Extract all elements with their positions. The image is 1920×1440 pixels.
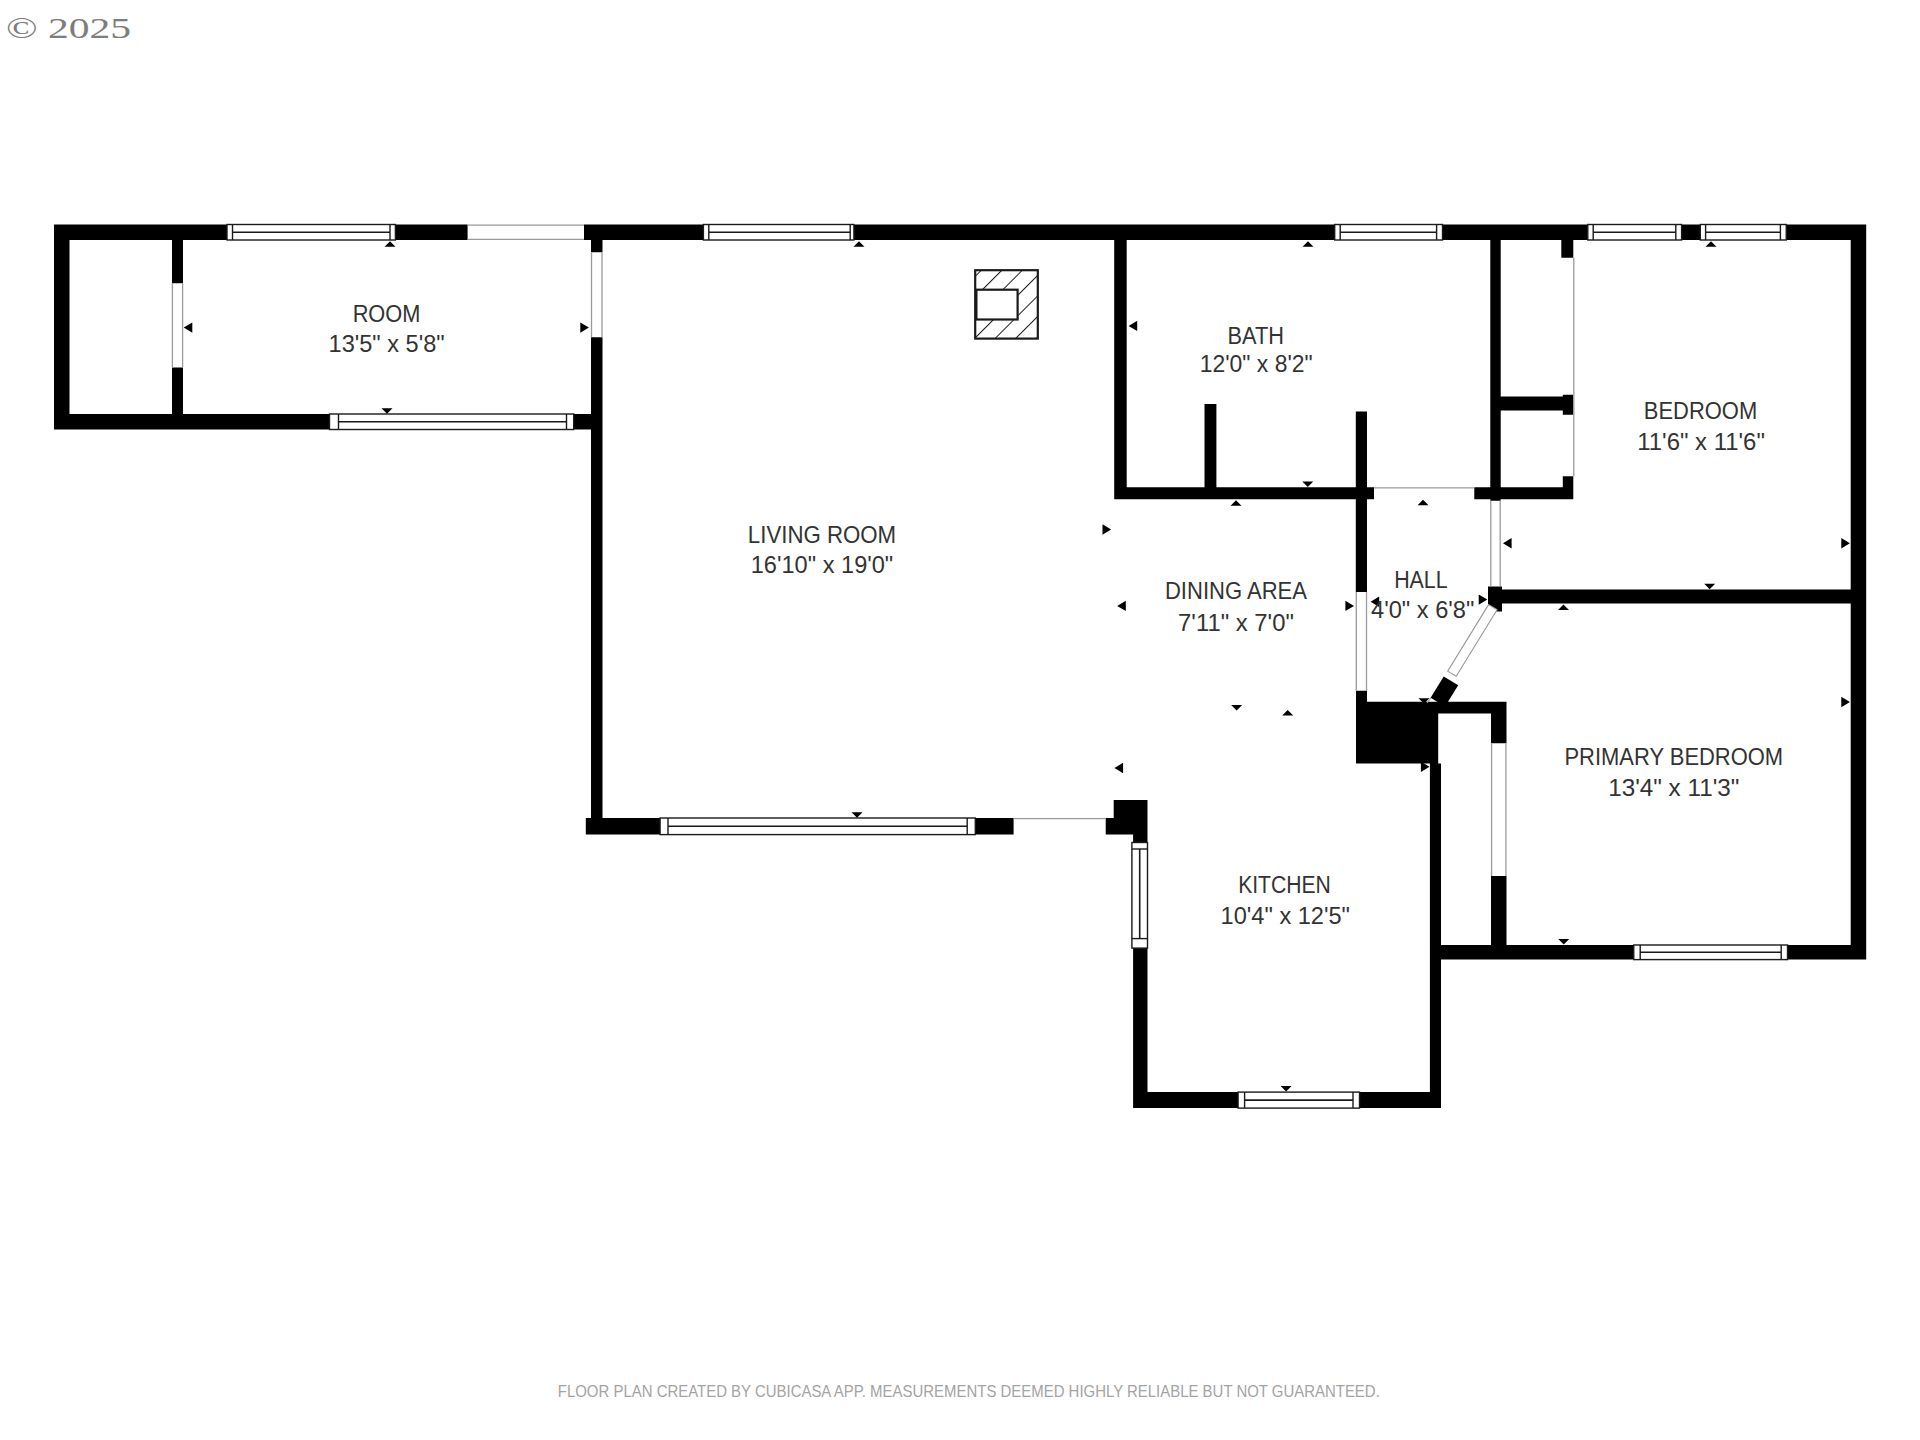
- svg-text:10'4" x 12'5": 10'4" x 12'5": [1221, 902, 1350, 929]
- svg-text:7'11" x 7'0": 7'11" x 7'0": [1178, 609, 1294, 636]
- svg-text:LIVING ROOM: LIVING ROOM: [748, 521, 896, 548]
- svg-text:PRIMARY BEDROOM: PRIMARY BEDROOM: [1564, 743, 1783, 770]
- svg-text:13'4" x 11'3": 13'4" x 11'3": [1608, 774, 1739, 801]
- svg-text:HALL: HALL: [1394, 566, 1448, 593]
- svg-text:BATH: BATH: [1228, 322, 1284, 349]
- svg-text:ROOM: ROOM: [353, 300, 421, 327]
- svg-text:FLOOR PLAN CREATED BY CUBICASA: FLOOR PLAN CREATED BY CUBICASA APP. MEAS…: [558, 1382, 1380, 1401]
- svg-text:11'6" x 11'6": 11'6" x 11'6": [1637, 428, 1765, 455]
- svg-text:16'10" x 19'0": 16'10" x 19'0": [751, 551, 894, 578]
- svg-text:12'0" x 8'2": 12'0" x 8'2": [1200, 350, 1313, 377]
- svg-text:4'0" x 6'8": 4'0" x 6'8": [1371, 596, 1474, 623]
- svg-text:BEDROOM: BEDROOM: [1644, 397, 1757, 424]
- svg-text:KITCHEN: KITCHEN: [1238, 871, 1331, 898]
- svg-text:© 2025: © 2025: [6, 11, 131, 44]
- svg-text:13'5" x 5'8": 13'5" x 5'8": [329, 330, 445, 357]
- svg-text:DINING AREA: DINING AREA: [1165, 577, 1308, 604]
